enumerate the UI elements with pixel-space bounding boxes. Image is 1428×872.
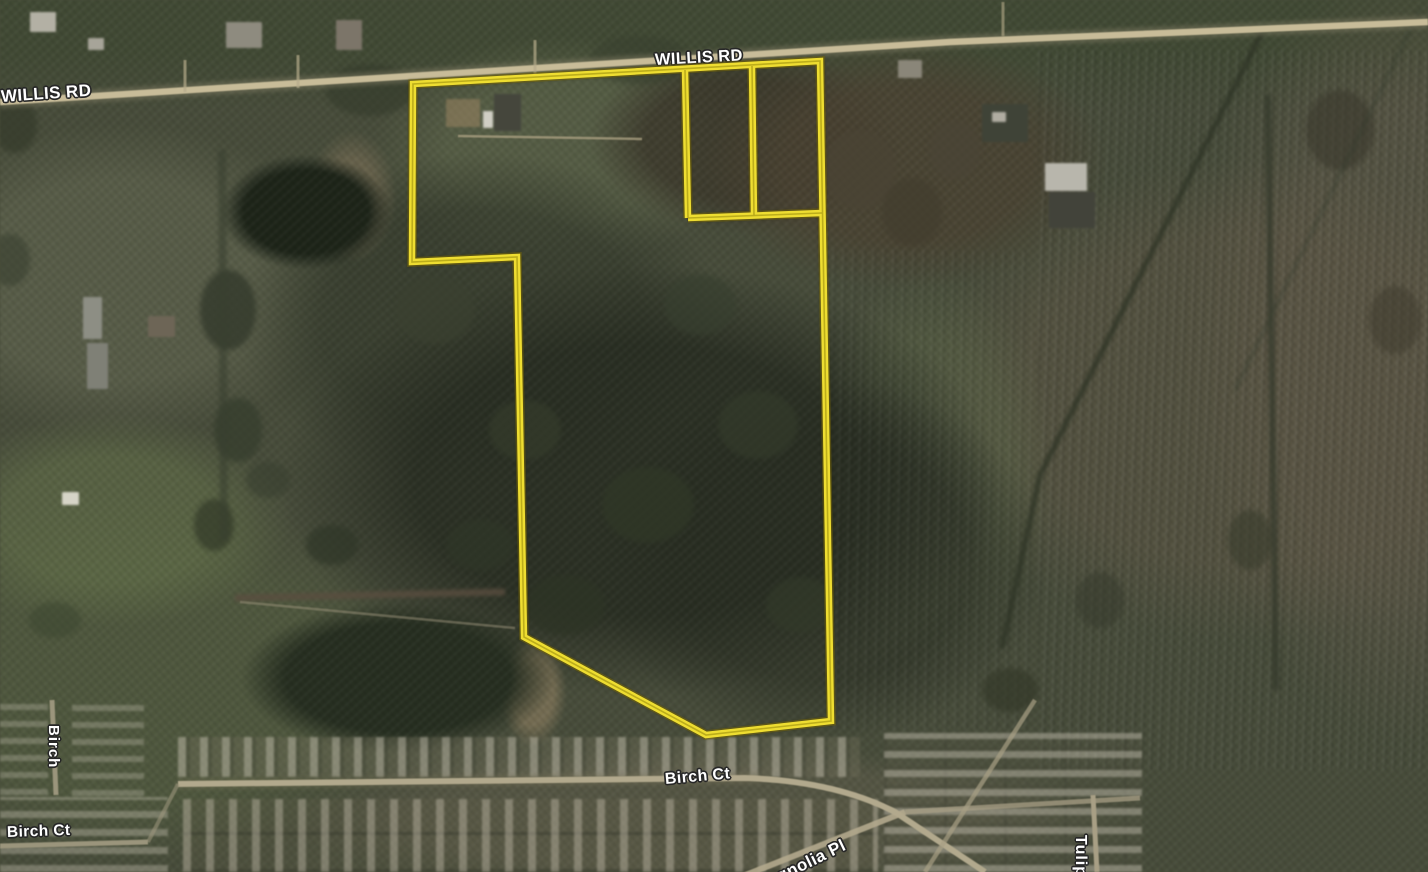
parcel-boundary <box>0 0 1428 872</box>
map-canvas[interactable]: WILLIS RD WILLIS RD Birch Ct Birch Birch… <box>0 0 1428 872</box>
